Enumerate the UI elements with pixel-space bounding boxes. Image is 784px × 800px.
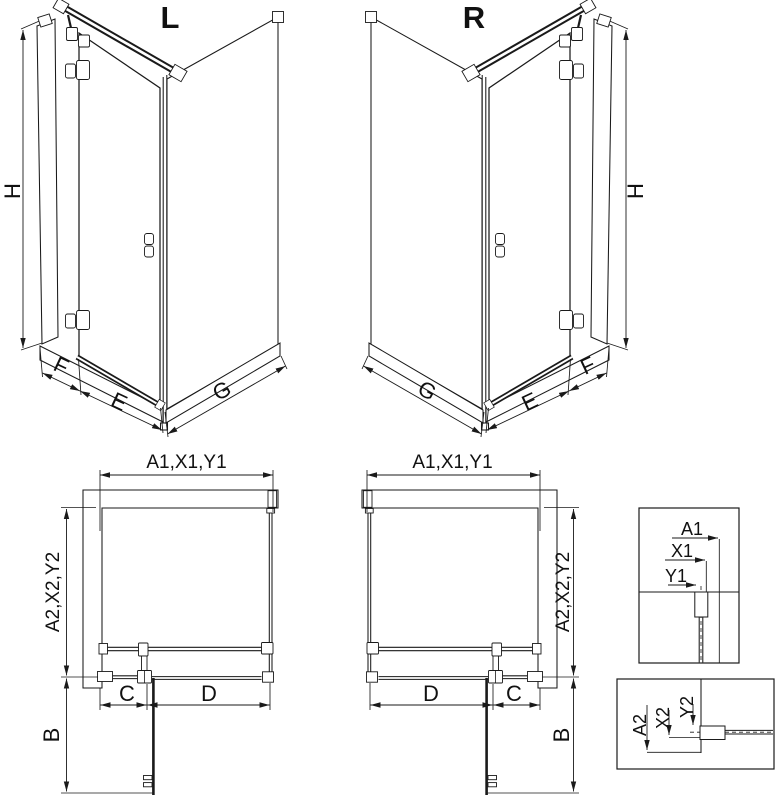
plan-right-dim-door: D <box>423 681 439 706</box>
plan-right-dim-swing: B <box>549 728 574 743</box>
detail-width-y1: Y1 <box>665 566 687 586</box>
iso-left-dim-h: H <box>0 183 25 199</box>
plan-stabilizer-bar <box>99 643 273 672</box>
door-hinge-top <box>66 61 90 80</box>
detail-depth-a2: A2 <box>630 714 650 736</box>
plan-door-closed <box>152 677 262 680</box>
shower-enclosure-spec-diagram: L H F E G R H F E G A1,X1,Y1 A2,X2,Y2 B … <box>0 0 784 800</box>
plan-left-dim-swing: B <box>39 728 64 743</box>
detail-width-x1: X1 <box>671 541 693 561</box>
iso-right-dim-h: H <box>623 183 648 199</box>
hatched-walls <box>83 490 278 688</box>
plan-left-dim-door: D <box>201 681 217 706</box>
door-panel <box>79 33 160 405</box>
corner-post <box>161 75 168 430</box>
plan-left-dim-fixed: C <box>119 681 135 706</box>
detail-width-a1: A1 <box>681 519 703 539</box>
plan-fixed-segment <box>98 672 139 682</box>
detail-depth-y2: Y2 <box>677 696 697 718</box>
plan-right-dim-depth: A2,X2,Y2 <box>553 552 574 632</box>
detail-depth-x2: X2 <box>653 707 673 729</box>
plan-left-dim-width: A1,X1,Y1 <box>146 452 226 473</box>
plan-enclosure-art-right <box>362 470 579 795</box>
fixed-panel <box>37 14 58 344</box>
plan-right-dim-width: A1,X1,Y1 <box>412 452 492 473</box>
iso-left-title: L <box>161 0 180 35</box>
plan-door-open <box>144 678 154 795</box>
plan-side-glass <box>263 509 275 683</box>
iso-right-title: R <box>463 0 485 35</box>
plan-right-dim-fixed: C <box>506 681 522 706</box>
plan-left-dim-depth: A2,X2,Y2 <box>43 552 64 632</box>
plan-door-hinge <box>138 671 152 684</box>
plan-enclosure-art <box>61 470 278 795</box>
door-hinge-bottom <box>66 311 90 330</box>
